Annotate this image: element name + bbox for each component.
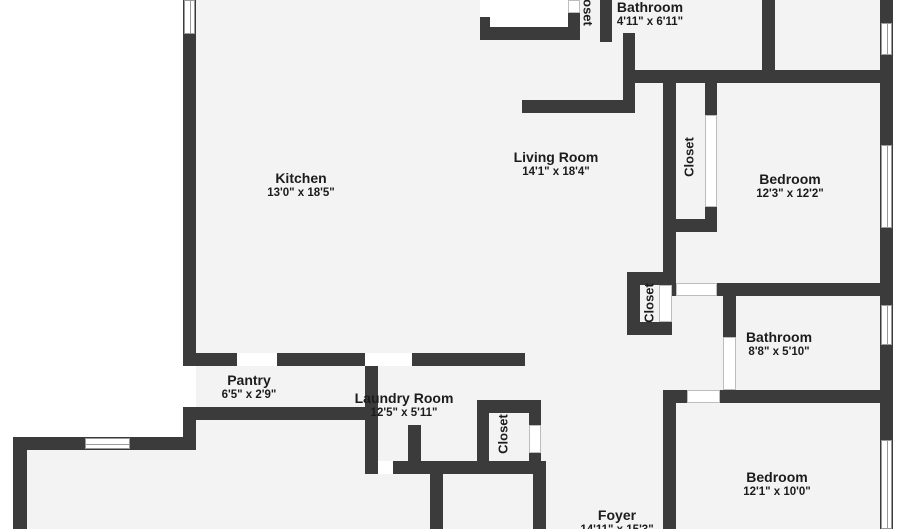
room-dimensions: 12'1" x 10'0"	[743, 485, 811, 500]
door-opening	[529, 425, 541, 453]
window	[881, 440, 892, 529]
room-dimensions: 12'3" x 12'2"	[756, 187, 824, 202]
wall	[477, 400, 489, 461]
room-label-foyer: Foyer 14'11" x 15'3"	[580, 507, 653, 529]
wall	[183, 407, 378, 420]
floorplan: Kitchen 13'0" x 18'5" Living Room 14'1" …	[0, 0, 900, 529]
door-opening	[705, 115, 717, 207]
door-opening	[723, 337, 736, 390]
wall	[663, 219, 717, 232]
room-label-closet-hall: Closet	[642, 283, 657, 323]
wall	[183, 0, 196, 366]
window	[881, 145, 892, 228]
window	[881, 23, 892, 55]
room-dimensions: 8'8" x 5'10"	[746, 345, 812, 360]
floor-bottom-left-room	[27, 450, 196, 529]
room-name: Foyer	[580, 507, 653, 523]
wall	[522, 100, 635, 113]
door-opening	[365, 353, 412, 366]
room-name: Bathroom	[746, 329, 812, 345]
room-name: Bedroom	[756, 171, 824, 187]
room-name: Living Room	[514, 149, 599, 165]
room-dimensions: 12'5" x 5'11"	[355, 406, 454, 421]
window	[85, 438, 130, 449]
room-label-closet-laundry: Closet	[496, 414, 511, 454]
wall	[408, 425, 421, 461]
wall	[183, 353, 525, 366]
window	[881, 305, 892, 345]
room-label-kitchen: Kitchen 13'0" x 18'5"	[267, 170, 335, 201]
door-opening	[237, 353, 277, 366]
wall	[663, 70, 676, 296]
room-name: Pantry	[222, 372, 277, 388]
door-opening	[687, 390, 720, 403]
wall	[430, 474, 443, 529]
room-dimensions: 14'1" x 18'4"	[514, 165, 599, 180]
room-label-closet-bedroom: Closet	[682, 137, 697, 177]
room-name: Bedroom	[743, 469, 811, 485]
room-label-bedroom-right: Bedroom 12'3" x 12'2"	[756, 171, 824, 202]
room-label-bathroom-top: Bathroom 4'11" x 6'11"	[617, 0, 683, 30]
room-name: Bathroom	[617, 0, 683, 15]
room-name: Laundry Room	[355, 390, 454, 406]
exterior-pocket	[480, 0, 568, 27]
wall	[533, 474, 546, 529]
room-label-bedroom-bottom: Bedroom 12'1" x 10'0"	[743, 469, 811, 500]
door-opening	[378, 461, 393, 474]
room-name: Kitchen	[267, 170, 335, 186]
wall	[480, 27, 568, 40]
room-label-living-room: Living Room 14'1" x 18'4"	[514, 149, 599, 180]
wall	[600, 0, 612, 42]
room-label-bathroom-right: Bathroom 8'8" x 5'10"	[746, 329, 812, 360]
wall	[663, 390, 676, 529]
room-label-pantry: Pantry 6'5" x 2'9"	[222, 372, 277, 403]
wall	[13, 437, 27, 529]
room-label-closet-top: Closet	[581, 0, 596, 26]
door-opening	[659, 285, 672, 322]
door-opening	[568, 0, 580, 13]
room-dimensions: 4'11" x 6'11"	[617, 15, 683, 30]
room-dimensions: 14'11" x 15'3"	[580, 523, 653, 529]
wall	[717, 283, 893, 296]
room-dimensions: 6'5" x 2'9"	[222, 388, 277, 403]
room-label-laundry: Laundry Room 12'5" x 5'11"	[355, 390, 454, 421]
window	[184, 0, 195, 34]
room-dimensions: 13'0" x 18'5"	[267, 186, 335, 201]
wall	[627, 322, 672, 335]
door-opening	[676, 283, 717, 296]
